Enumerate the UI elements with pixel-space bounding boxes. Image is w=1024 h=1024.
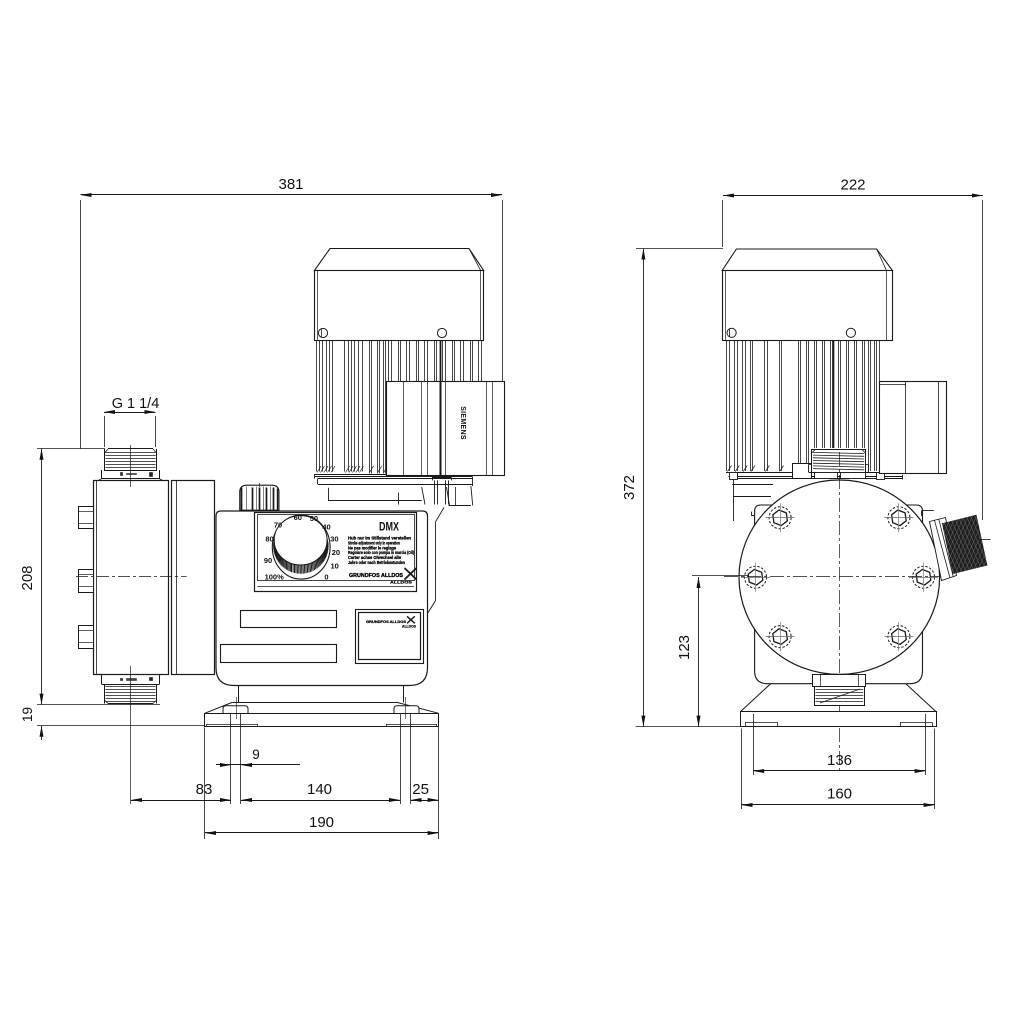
svg-text:G 1 1/4: G 1 1/4: [112, 396, 160, 412]
svg-text:0: 0: [324, 572, 328, 581]
svg-text:19: 19: [20, 707, 35, 722]
svg-text:190: 190: [309, 814, 334, 831]
svg-text:140: 140: [307, 781, 332, 798]
svg-text:208: 208: [19, 565, 36, 590]
svg-text:25: 25: [412, 781, 429, 798]
svg-text:83: 83: [196, 781, 213, 798]
svg-text:SIEMENS: SIEMENS: [459, 406, 466, 440]
svg-text:10: 10: [331, 562, 339, 571]
svg-text:160: 160: [827, 786, 852, 803]
svg-text:GRUNDFOS ALLDOS: GRUNDFOS ALLDOS: [366, 620, 407, 624]
svg-text:60: 60: [294, 513, 302, 522]
svg-text:136: 136: [827, 752, 852, 769]
svg-text:123: 123: [676, 635, 693, 660]
svg-text:GRUNDFOS ALLDOS: GRUNDFOS ALLDOS: [349, 573, 404, 579]
svg-text:381: 381: [278, 176, 303, 193]
svg-text:Jahre oder nach Betriebsstunde: Jahre oder nach Betriebsstunden: [348, 560, 405, 565]
svg-text:80: 80: [265, 535, 273, 544]
svg-text:ALLDOS: ALLDOS: [390, 580, 412, 585]
svg-text:ALLDOS: ALLDOS: [402, 625, 416, 629]
svg-text:90: 90: [264, 556, 272, 565]
svg-text:372: 372: [621, 475, 638, 500]
svg-text:DMX: DMX: [379, 520, 399, 534]
svg-text:20: 20: [332, 548, 340, 557]
svg-text:9: 9: [252, 747, 260, 762]
svg-text:50: 50: [310, 514, 318, 523]
svg-text:100%: 100%: [265, 573, 285, 582]
svg-text:30: 30: [330, 535, 338, 544]
svg-text:70: 70: [274, 521, 282, 530]
svg-text:40: 40: [322, 523, 330, 532]
svg-text:222: 222: [840, 177, 865, 194]
